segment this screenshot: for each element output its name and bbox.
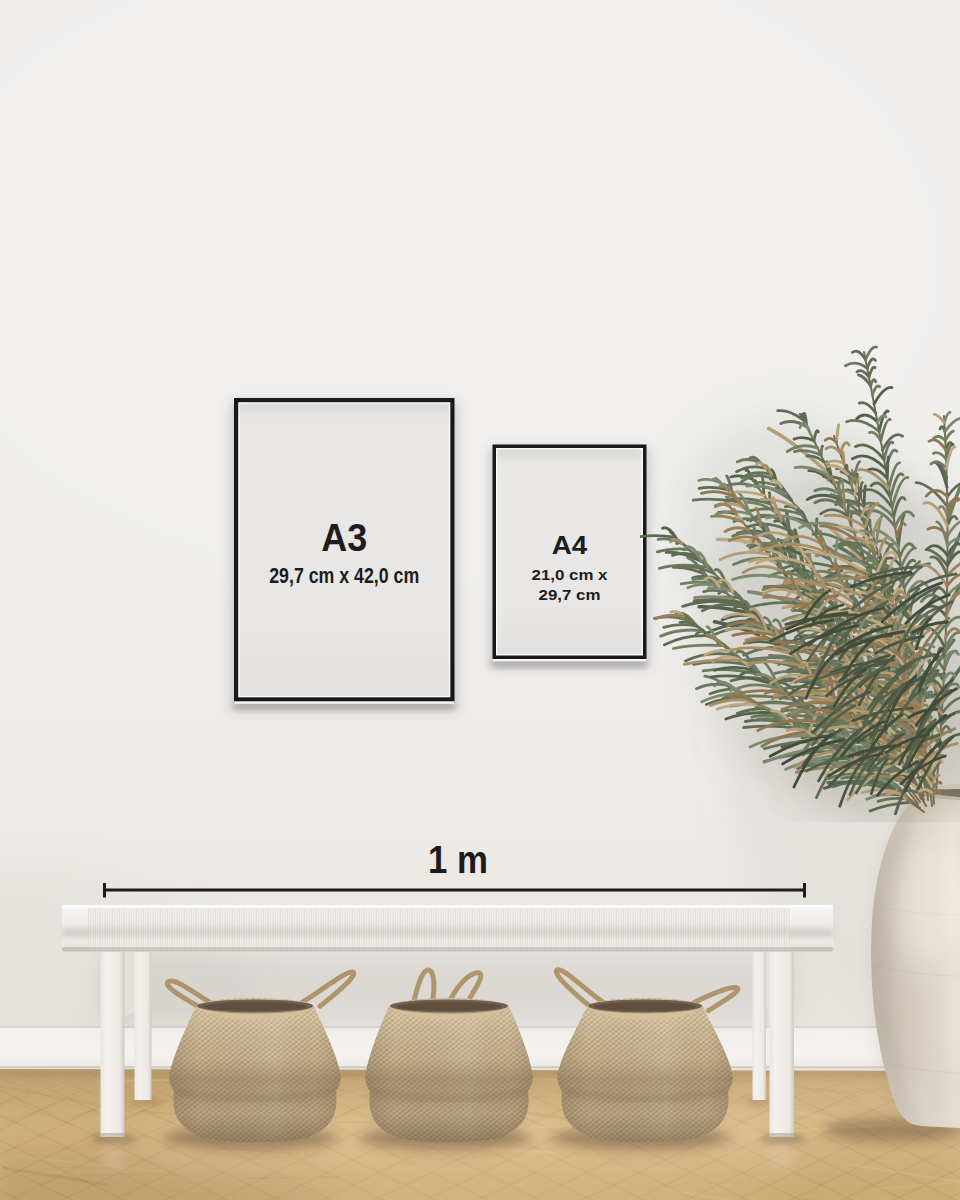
svg-text:1 m: 1 m	[428, 839, 488, 881]
svg-text:A3: A3	[321, 517, 367, 559]
svg-text:29,7 cm x 42,0 cm: 29,7 cm x 42,0 cm	[269, 563, 419, 588]
svg-text:A4: A4	[552, 530, 588, 560]
svg-text:21,0 cm x: 21,0 cm x	[532, 567, 609, 583]
svg-text:29,7 cm: 29,7 cm	[539, 587, 601, 603]
